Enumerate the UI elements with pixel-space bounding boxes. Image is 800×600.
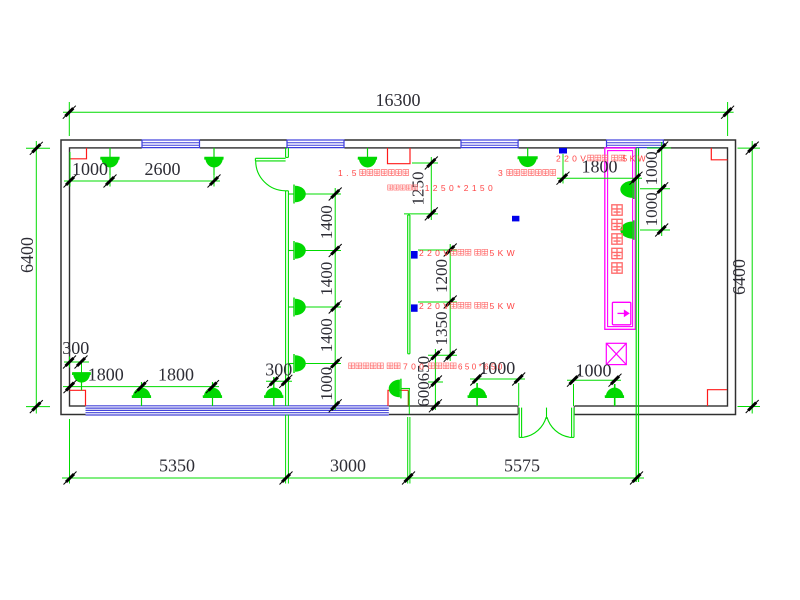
- svg-text:2 2 0 V: 2 2 0 V: [419, 248, 449, 258]
- svg-text:1350: 1350: [432, 312, 451, 346]
- svg-text:1800: 1800: [88, 365, 124, 385]
- svg-text:5350: 5350: [159, 456, 195, 476]
- svg-text:1400: 1400: [317, 318, 336, 352]
- svg-text:7 0 0: 7 0 0: [403, 361, 424, 371]
- svg-text:2 2 0 V: 2 2 0 V: [419, 301, 449, 311]
- svg-text:3000: 3000: [330, 456, 366, 476]
- svg-text:600: 600: [414, 381, 433, 407]
- svg-text:1400: 1400: [317, 262, 336, 296]
- svg-text:5 K W: 5 K W: [490, 301, 516, 311]
- svg-text:2 2 0 V: 2 2 0 V: [556, 154, 586, 164]
- svg-text:1000: 1000: [72, 159, 108, 179]
- svg-text:1200: 1200: [432, 259, 451, 293]
- svg-text:6400: 6400: [729, 259, 749, 295]
- svg-text:5 K W: 5 K W: [490, 248, 516, 258]
- svg-text:1000: 1000: [317, 367, 336, 401]
- svg-text:6 5 0 * 6 5 0: 6 5 0 * 6 5 0: [458, 362, 503, 371]
- svg-text:2600: 2600: [145, 159, 181, 179]
- svg-text:1400: 1400: [317, 205, 336, 239]
- svg-text:6400: 6400: [17, 237, 37, 273]
- svg-text:: 1 2 5 0 * 2 1 5 0: : 1 2 5 0 * 2 1 5 0: [419, 183, 493, 193]
- svg-text:1000: 1000: [642, 192, 661, 226]
- svg-text:300: 300: [265, 359, 292, 379]
- svg-text:1000: 1000: [576, 361, 612, 381]
- svg-text:300: 300: [62, 338, 89, 358]
- svg-text:3: 3: [498, 168, 503, 178]
- svg-text:5575: 5575: [504, 456, 540, 476]
- svg-text:5 K W: 5 K W: [623, 154, 646, 164]
- svg-text:1800: 1800: [158, 365, 194, 385]
- svg-text:16300: 16300: [376, 90, 421, 110]
- svg-text:1 . 5: 1 . 5: [338, 168, 357, 178]
